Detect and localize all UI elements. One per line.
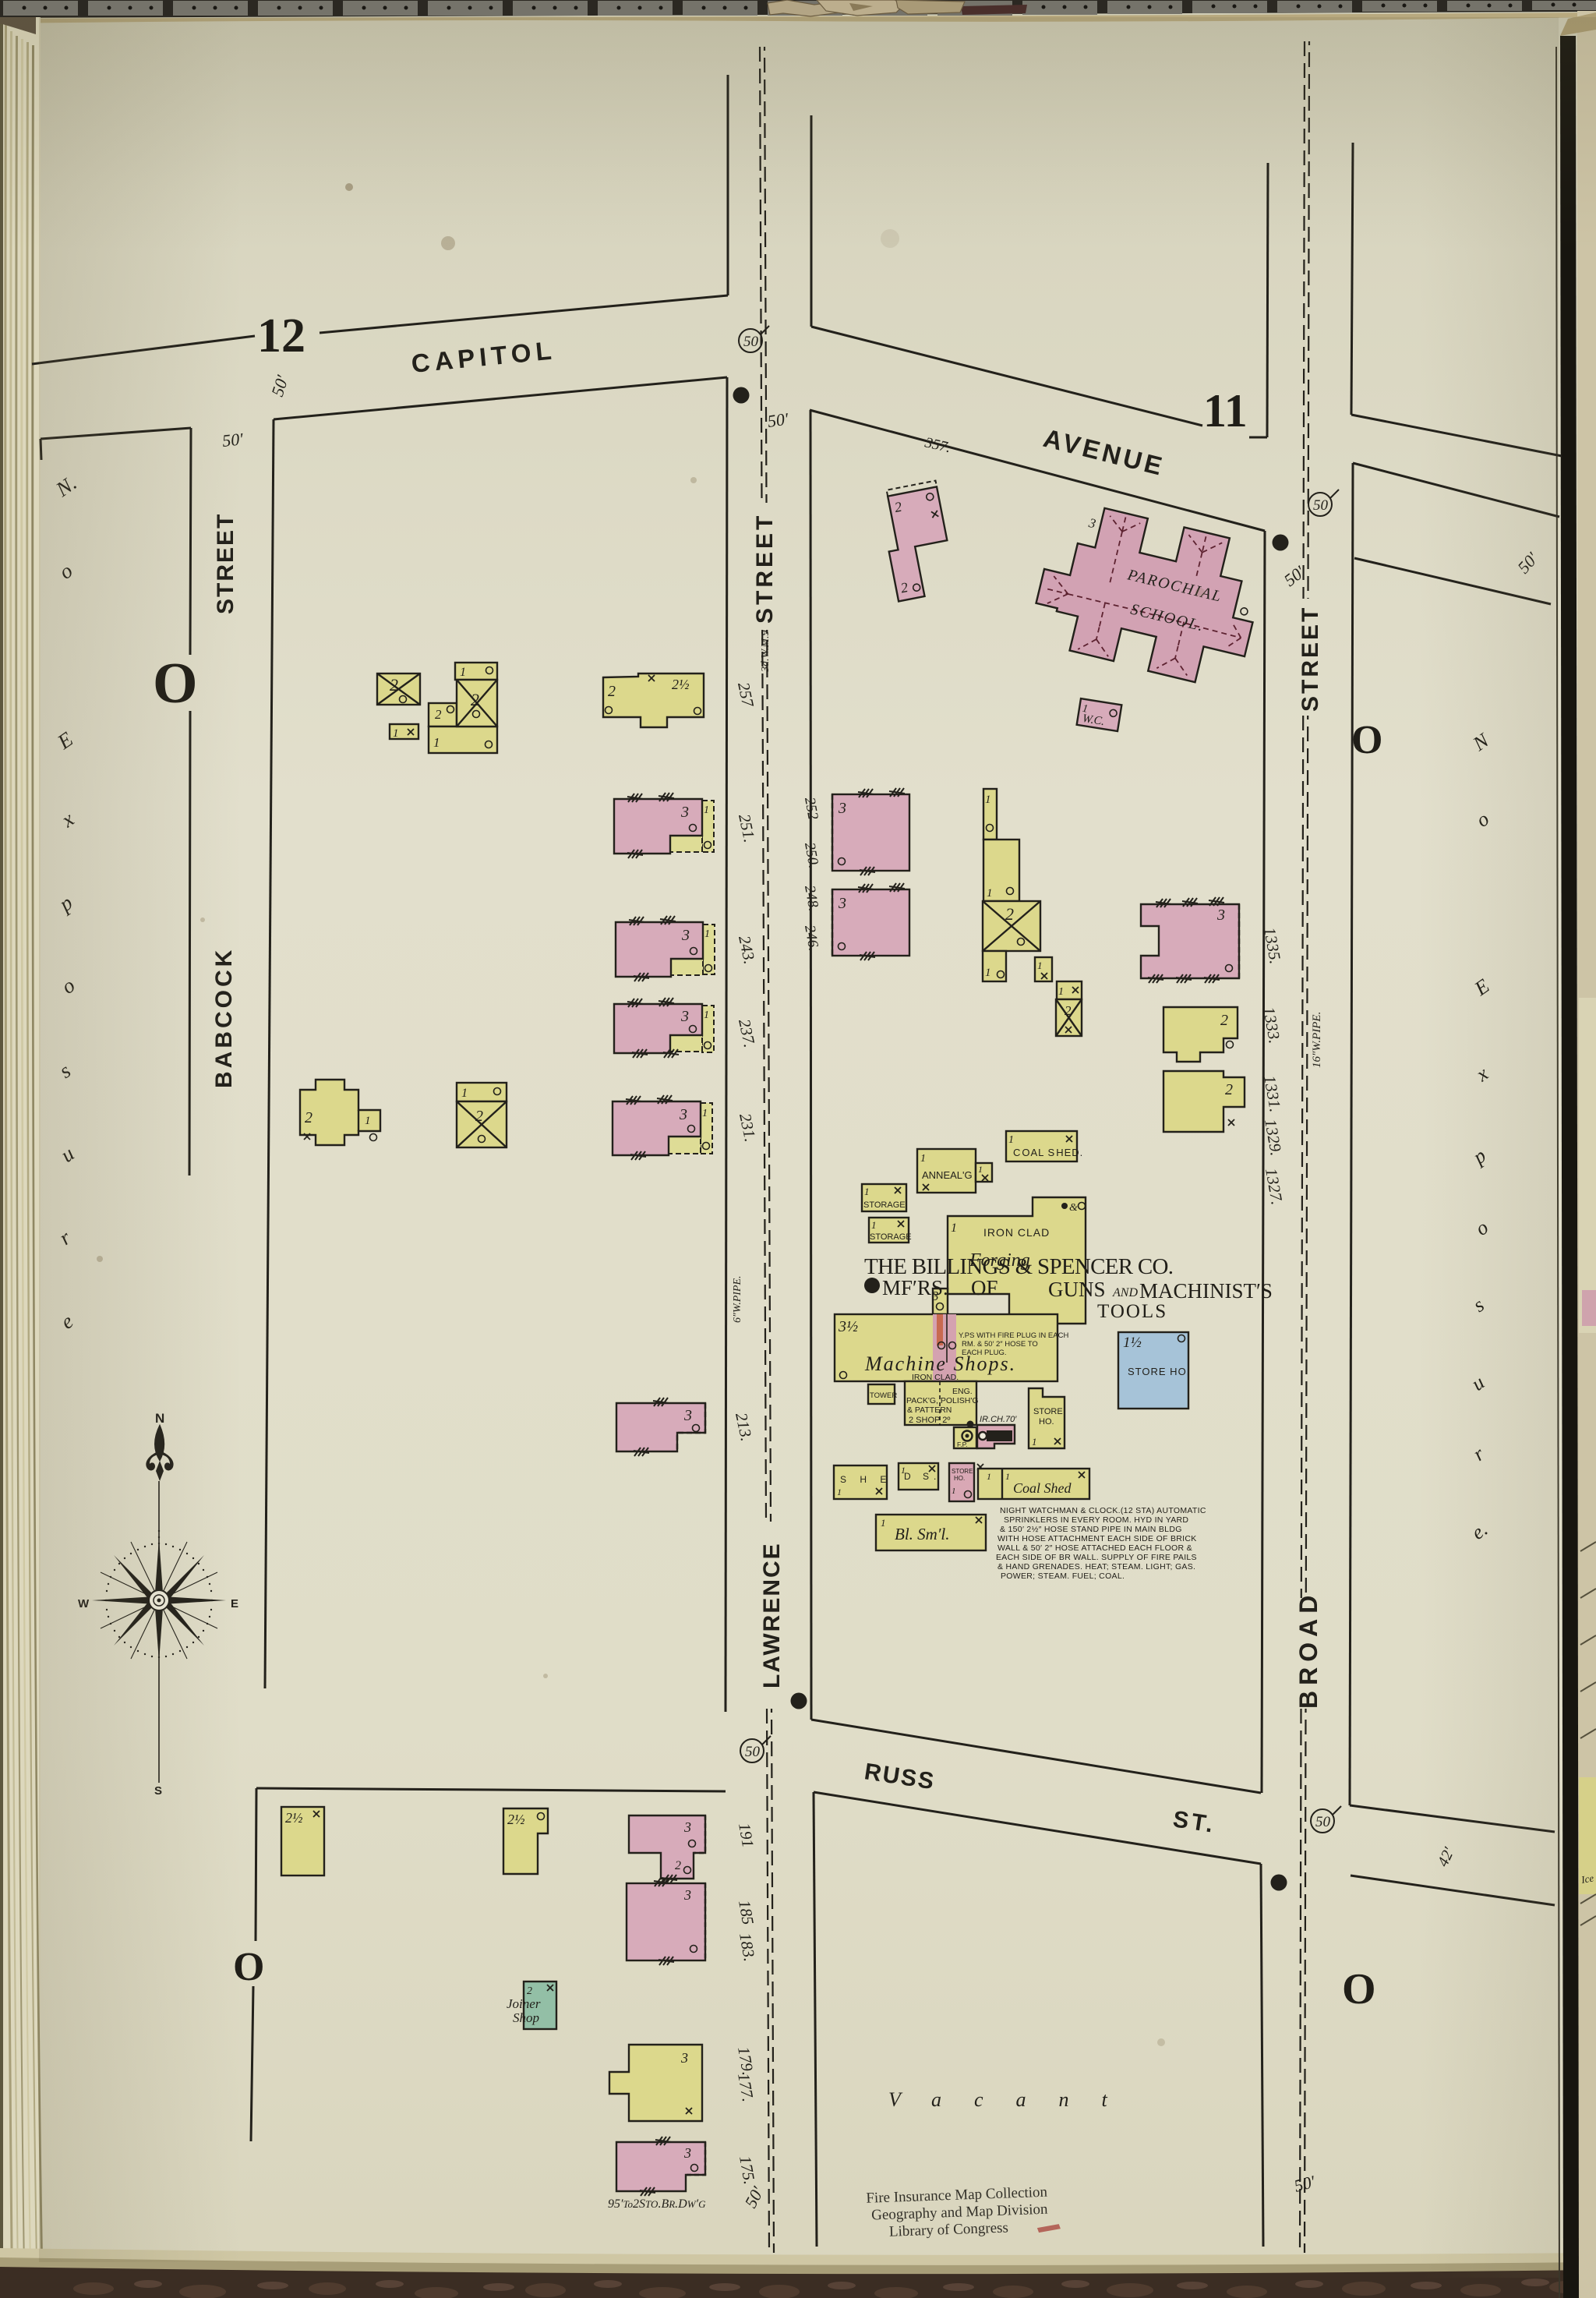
svg-text:2: 2: [527, 1985, 532, 1997]
svg-text:COAL SHED.: COAL SHED.: [1013, 1147, 1083, 1158]
svg-text:1: 1: [1005, 1471, 1010, 1482]
svg-text:3: 3: [680, 1008, 689, 1025]
svg-text:2½: 2½: [285, 1810, 303, 1826]
svg-text:1: 1: [952, 1487, 956, 1496]
svg-text:BROAD: BROAD: [1294, 1590, 1322, 1709]
svg-text:1: 1: [393, 727, 399, 740]
svg-text:Shop: Shop: [513, 2010, 539, 2025]
svg-text:3: 3: [838, 895, 846, 912]
svg-text:IR.CH.70′: IR.CH.70′: [980, 1415, 1017, 1424]
svg-text:STORE: STORE: [1033, 1407, 1063, 1416]
svg-text:1: 1: [987, 887, 993, 900]
svg-text:MACHINIST′S: MACHINIST′S: [1139, 1279, 1273, 1303]
svg-text:3: 3: [931, 1289, 939, 1303]
svg-text:STREET: STREET: [1298, 606, 1323, 712]
svg-text:2: 2: [675, 1859, 681, 1872]
svg-text:1: 1: [433, 735, 440, 750]
svg-text:2½: 2½: [507, 1812, 525, 1827]
svg-text:WITH HOSE ATTACHMENT EACH SIDE: WITH HOSE ATTACHMENT EACH SIDE OF BRICK: [997, 1534, 1197, 1543]
svg-text:AND: AND: [1112, 1286, 1138, 1299]
svg-text:2: 2: [305, 1109, 312, 1126]
svg-text:POWER; STEAM. FUEL; COAL.: POWER; STEAM. FUEL; COAL.: [1001, 1571, 1125, 1581]
svg-text:2: 2: [1065, 1003, 1072, 1018]
svg-text:2: 2: [471, 690, 479, 709]
svg-text:NIGHT WATCHMAN & CLOCK.(12 STA: NIGHT WATCHMAN & CLOCK.(12 STA) AUTOMATI…: [1000, 1506, 1206, 1515]
svg-text:Bl. Sm′l.: Bl. Sm′l.: [895, 1525, 950, 1543]
svg-text:D S.: D S.: [904, 1471, 941, 1482]
svg-text:&: &: [1069, 1202, 1078, 1214]
svg-text:RM. & 50′ 2″ HOSE TO: RM. & 50′ 2″ HOSE TO: [962, 1340, 1038, 1349]
svg-text:1: 1: [837, 1487, 842, 1497]
svg-text:1½: 1½: [1123, 1335, 1142, 1351]
svg-text:& PATTERN: & PATTERN: [907, 1405, 952, 1415]
svg-text:EACH PLUG.: EACH PLUG.: [962, 1349, 1007, 1357]
svg-text:SPRINKLERS IN EVERY ROOM. HYD: SPRINKLERS IN EVERY ROOM. HYD IN YARD: [1004, 1515, 1188, 1525]
svg-text:1: 1: [704, 928, 710, 940]
svg-text:2½: 2½: [672, 677, 690, 692]
svg-text:3: 3: [680, 804, 689, 821]
svg-text:EACH SIDE OF BR WALL. SUPPLY O: EACH SIDE OF BR WALL. SUPPLY OF FIRE PAI…: [996, 1553, 1197, 1562]
svg-text:1: 1: [978, 1164, 983, 1175]
svg-text:Joiner: Joiner: [507, 1996, 541, 2011]
svg-text:11: 11: [1203, 385, 1248, 437]
svg-text:OF: OF: [971, 1276, 998, 1299]
svg-text:1: 1: [704, 804, 709, 816]
svg-text:3: 3: [680, 2050, 688, 2066]
svg-text:HO.: HO.: [1039, 1417, 1054, 1427]
svg-text:3: 3: [1216, 907, 1225, 924]
svg-text:PACK'G, POLISH'G: PACK'G, POLISH'G: [906, 1396, 979, 1405]
svg-text:1: 1: [460, 666, 466, 679]
svg-text:2: 2: [475, 1108, 483, 1125]
svg-text:IRON CLAD: IRON CLAD: [983, 1226, 1050, 1239]
svg-text:WALL & 50′ 2″ HOSE ATTACHED EA: WALL & 50′ 2″ HOSE ATTACHED EACH FLOOR &: [997, 1543, 1192, 1553]
svg-text:STORAGE: STORAGE: [863, 1200, 906, 1210]
svg-text:50′: 50′: [766, 408, 790, 431]
svg-text:S H E: S H E: [840, 1474, 892, 1485]
svg-text:1: 1: [1032, 1436, 1037, 1448]
svg-text:O: O: [1351, 718, 1382, 762]
svg-text:Coal Shed: Coal Shed: [1013, 1480, 1072, 1496]
svg-text:3: 3: [683, 1887, 691, 1903]
svg-text:Vacant: Vacant: [888, 2088, 1140, 2111]
svg-text:2: 2: [1220, 1012, 1228, 1029]
svg-text:3: 3: [683, 1407, 692, 1424]
svg-text:2: 2: [435, 707, 442, 722]
svg-text:Y.PS WITH FIRE PLUG IN EACH: Y.PS WITH FIRE PLUG IN EACH: [959, 1331, 1068, 1340]
svg-text:2: 2: [1225, 1081, 1233, 1098]
svg-text:LAWRENCE: LAWRENCE: [759, 1542, 785, 1688]
svg-text:3: 3: [679, 1106, 687, 1123]
svg-text:2: 2: [608, 683, 616, 700]
svg-text:1: 1: [461, 1087, 468, 1100]
svg-text:TOWER: TOWER: [870, 1391, 897, 1400]
svg-text:2 SHOP 2º: 2 SHOP 2º: [909, 1416, 950, 1425]
svg-text:1: 1: [1058, 986, 1064, 998]
svg-text:3: 3: [838, 800, 846, 817]
svg-text:3: 3: [681, 927, 690, 944]
svg-text:1: 1: [987, 1471, 991, 1482]
svg-text:STORE HO.: STORE HO.: [1128, 1366, 1190, 1377]
svg-text:1: 1: [1008, 1134, 1014, 1146]
svg-text:STORAGE: STORAGE: [870, 1232, 912, 1242]
svg-text:1: 1: [871, 1219, 877, 1231]
svg-text:2: 2: [390, 675, 398, 695]
svg-text:3½: 3½: [838, 1318, 858, 1335]
svg-text:3: 3: [683, 2145, 691, 2161]
svg-text:TOOLS: TOOLS: [1097, 1301, 1167, 1322]
svg-text:ENG.: ENG.: [952, 1387, 973, 1396]
svg-text:95′To2STO.BR.DW′G: 95′To2STO.BR.DW′G: [608, 2197, 706, 2211]
svg-text:1: 1: [985, 794, 991, 806]
svg-text:6″W.PIPE.: 6″W.PIPE.: [732, 1275, 743, 1323]
svg-text:1: 1: [365, 1115, 371, 1127]
svg-text:1: 1: [702, 1108, 708, 1119]
svg-text:1: 1: [881, 1517, 886, 1529]
svg-text:12: 12: [257, 309, 305, 362]
svg-text:1: 1: [985, 967, 991, 979]
svg-text:O: O: [1342, 1965, 1376, 2013]
svg-text:1: 1: [704, 1009, 709, 1021]
svg-text:1: 1: [1037, 960, 1043, 971]
svg-text:Ice: Ice: [1580, 1872, 1594, 1886]
svg-text:STREET: STREET: [752, 513, 778, 624]
svg-text:ANNEAL'G: ANNEAL'G: [922, 1169, 973, 1181]
svg-text:STORE: STORE: [952, 1468, 973, 1475]
svg-text:1: 1: [901, 1465, 906, 1476]
svg-text:F.P.: F.P.: [957, 1441, 968, 1448]
svg-text:1: 1: [951, 1221, 957, 1235]
svg-text:GUNS: GUNS: [1048, 1278, 1106, 1301]
svg-text:1: 1: [920, 1153, 926, 1165]
svg-text:3d.W.M.9: 3d.W.M.9: [760, 630, 772, 673]
svg-text:2: 2: [1005, 904, 1014, 924]
svg-text:& HAND GRENADES. HEAT; STEAM.: & HAND GRENADES. HEAT; STEAM. LIGHT; GAS…: [997, 1562, 1195, 1571]
svg-text:3: 3: [683, 1819, 691, 1835]
svg-text:1: 1: [864, 1186, 870, 1197]
svg-text:HO.: HO.: [954, 1475, 965, 1482]
svg-text:16″W.PIPE.: 16″W.PIPE.: [1311, 1012, 1323, 1068]
svg-text:& 150′ 2½″ HOSE STAND PIPE IN: & 150′ 2½″ HOSE STAND PIPE IN MAIN BLDG: [1000, 1525, 1182, 1534]
